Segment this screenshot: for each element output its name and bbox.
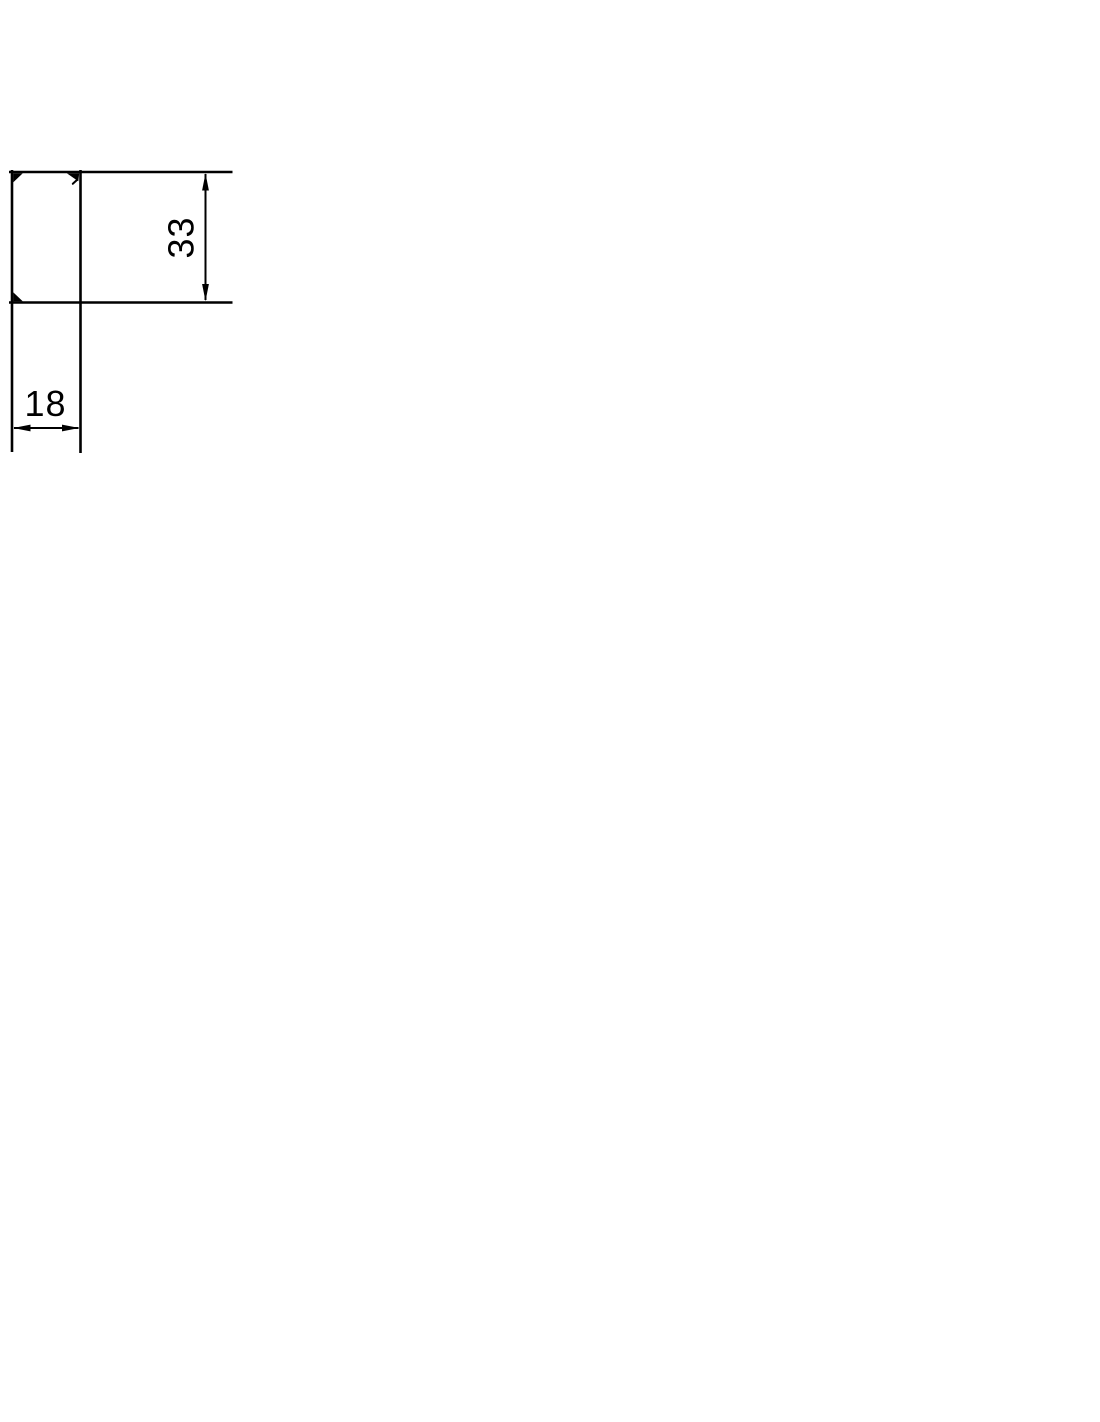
corner-arrow-top-left-icon xyxy=(13,173,23,182)
dimension-arrow-left-icon xyxy=(13,425,30,432)
technical-drawing: 33 18 xyxy=(0,0,1100,1422)
dimension-arrow-right-icon xyxy=(62,425,79,432)
corner-arrow-middle-left-icon xyxy=(13,292,23,301)
horizontal-dimension: 18 xyxy=(13,383,79,431)
vertical-dimension: 33 xyxy=(161,173,209,301)
corner-arrow-tail xyxy=(73,180,78,184)
drawing-canvas: 33 18 xyxy=(0,0,1100,1422)
dimension-arrow-down-icon xyxy=(202,284,209,301)
dimension-arrow-up-icon xyxy=(202,173,209,190)
horizontal-dimension-label: 18 xyxy=(24,383,66,424)
vertical-dimension-label: 33 xyxy=(161,216,202,258)
